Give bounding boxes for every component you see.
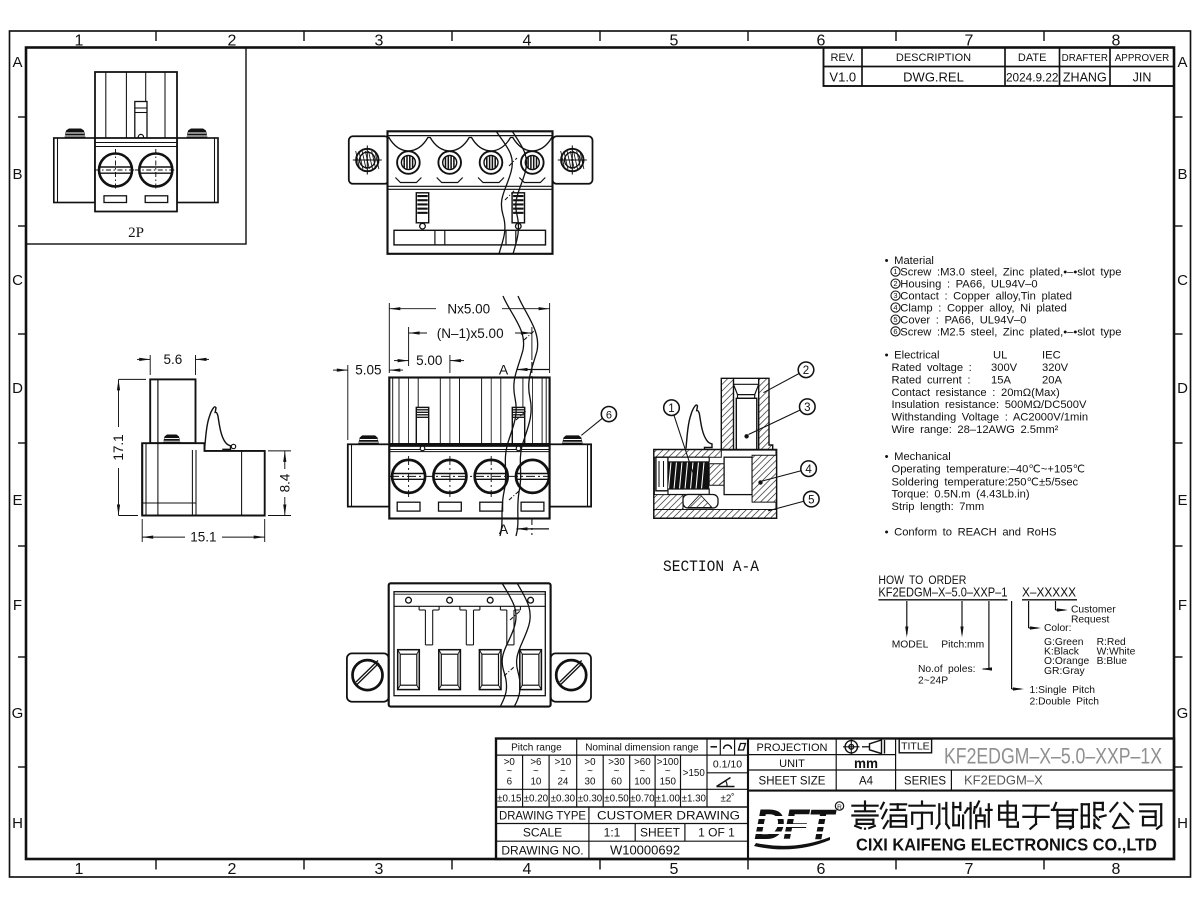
svg-text:5: 5 xyxy=(670,33,679,50)
svg-text:Screw :M3.0 steel, Zinc plate: Screw :M3.0 steel, Zinc plated,•–•slot t… xyxy=(900,267,1121,279)
svg-text:• Mechanical: • Mechanical xyxy=(885,451,951,463)
svg-text:5: 5 xyxy=(893,315,897,324)
svg-text:15.1: 15.1 xyxy=(190,530,216,545)
svg-text:IEC: IEC xyxy=(1042,350,1061,362)
svg-text:17.1: 17.1 xyxy=(111,434,126,460)
svg-text:Withstanding Voltage : AC20: Withstanding Voltage : AC2000V/1min xyxy=(892,412,1089,424)
svg-text:1: 1 xyxy=(75,861,84,878)
svg-text:2:Double Pitch: 2:Double Pitch xyxy=(1030,696,1100,707)
svg-text:Pitch range: Pitch range xyxy=(511,743,562,754)
svg-text:Screw :M2.5 steel, Zinc plate: Screw :M2.5 steel, Zinc plated,•–•slot t… xyxy=(900,326,1121,338)
svg-text:Operating temperature:–40℃~+1: Operating temperature:–40℃~+105℃ xyxy=(892,463,1086,475)
svg-text:Clamp : Copper alloy, Ni: Clamp : Copper alloy, Ni plated xyxy=(900,303,1067,315)
svg-text:6: 6 xyxy=(606,410,612,422)
svg-text:±0.30: ±0.30 xyxy=(551,794,576,805)
svg-text:2024.9.22: 2024.9.22 xyxy=(1006,71,1058,85)
svg-text:Rated current :: Rated current : xyxy=(892,375,971,387)
svg-text:±2˚: ±2˚ xyxy=(720,794,734,805)
svg-text:A: A xyxy=(1177,54,1187,71)
svg-text:±0.15: ±0.15 xyxy=(497,794,522,805)
svg-text:V1.0: V1.0 xyxy=(829,70,856,85)
svg-text:E: E xyxy=(12,492,22,509)
svg-text:6: 6 xyxy=(507,777,513,788)
svg-text:H: H xyxy=(12,815,23,832)
svg-text:A: A xyxy=(499,362,509,378)
svg-text:4: 4 xyxy=(523,33,532,50)
svg-text:C: C xyxy=(12,272,23,289)
svg-text:~: ~ xyxy=(560,766,566,777)
svg-text:3: 3 xyxy=(893,291,897,300)
svg-text:Nominal dimension range: Nominal dimension range xyxy=(585,743,699,754)
svg-text:G: G xyxy=(1177,705,1189,722)
svg-text:2: 2 xyxy=(893,279,897,288)
svg-text:8.4: 8.4 xyxy=(277,473,292,492)
svg-text:B: B xyxy=(1177,166,1187,183)
svg-text:1:Single Pitch: 1:Single Pitch xyxy=(1030,685,1096,696)
svg-text:±0.30: ±0.30 xyxy=(578,794,603,805)
svg-text:±1.30: ±1.30 xyxy=(682,794,707,805)
svg-text:20A: 20A xyxy=(1042,375,1062,387)
svg-text:DRAWING TYPE: DRAWING TYPE xyxy=(499,809,586,823)
svg-text:Request: Request xyxy=(1071,614,1109,625)
svg-text:Strip length: 7mm: Strip length: 7mm xyxy=(892,501,985,513)
svg-text:150: 150 xyxy=(660,777,677,788)
svg-text:15A: 15A xyxy=(991,375,1011,387)
svg-text:• Conform to REACH and RoH: • Conform to REACH and RoHS xyxy=(885,527,1057,539)
svg-text:KF2EDGM–X: KF2EDGM–X xyxy=(964,772,1043,787)
svg-text:No.of poles:: No.of poles: xyxy=(918,664,975,675)
svg-text:~: ~ xyxy=(640,766,646,777)
svg-text:Cover : PA66, UL94V–0: Cover : PA66, UL94V–0 xyxy=(900,315,1026,327)
svg-text:D: D xyxy=(12,380,23,397)
svg-text:DWG.REL: DWG.REL xyxy=(903,70,964,85)
svg-text:Contact resistance : 20mΩ(M: Contact resistance : 20mΩ(Max) xyxy=(892,387,1060,399)
svg-text:SCALE: SCALE xyxy=(523,826,562,840)
svg-text:5.6: 5.6 xyxy=(164,352,183,367)
svg-text:DATE: DATE xyxy=(1018,52,1047,64)
svg-text:MODEL: MODEL xyxy=(892,640,929,651)
svg-text:SECTION A-A: SECTION A-A xyxy=(663,558,760,576)
svg-text:1:1: 1:1 xyxy=(604,826,621,840)
svg-text:DRAFTER: DRAFTER xyxy=(1062,53,1108,64)
svg-text:5.05: 5.05 xyxy=(355,363,381,378)
svg-text:Wire range: 28–12AWG 2.5mm²: Wire range: 28–12AWG 2.5mm² xyxy=(892,424,1059,436)
svg-text:DESCRIPTION: DESCRIPTION xyxy=(896,52,971,64)
svg-text:4: 4 xyxy=(893,303,897,312)
svg-text:0.1/10: 0.1/10 xyxy=(713,759,742,771)
svg-text:3: 3 xyxy=(804,402,810,414)
svg-text:KF2EDGM–X–5.0–XXP–1X: KF2EDGM–X–5.0–XXP–1X xyxy=(944,744,1162,769)
svg-text:G: G xyxy=(12,705,24,722)
svg-text:Housing : PA66, UL94V–0: Housing : PA66, UL94V–0 xyxy=(900,279,1037,291)
svg-text:±1.00: ±1.00 xyxy=(656,794,681,805)
svg-text:~: ~ xyxy=(665,766,671,777)
svg-text:Color:: Color: xyxy=(1044,623,1071,634)
svg-text:DRAWING NO.: DRAWING NO. xyxy=(501,844,583,858)
svg-text:F: F xyxy=(1178,597,1187,614)
svg-text:REV.: REV. xyxy=(830,52,855,64)
svg-text:A4: A4 xyxy=(859,775,874,787)
svg-text:24: 24 xyxy=(557,777,568,788)
svg-text:ZHANG: ZHANG xyxy=(1063,71,1107,85)
svg-text:KF2EDGM–X–5.0–XXP–1: KF2EDGM–X–5.0–XXP–1 xyxy=(878,585,1007,600)
svg-text:UNIT: UNIT xyxy=(779,758,805,770)
svg-text:Rated voltage :: Rated voltage : xyxy=(892,362,972,374)
svg-text:3: 3 xyxy=(375,861,384,878)
svg-text:~: ~ xyxy=(506,766,512,777)
svg-text:1: 1 xyxy=(668,403,674,415)
svg-text:4: 4 xyxy=(805,464,812,476)
svg-text:APPROVER: APPROVER xyxy=(1115,53,1169,64)
svg-text:1: 1 xyxy=(893,267,897,276)
svg-text:PROJECTION: PROJECTION xyxy=(757,742,828,754)
svg-text:Insulation resistance: 500MΩ: Insulation resistance: 500MΩ/DC500V xyxy=(892,399,1087,411)
svg-text:300V: 300V xyxy=(991,362,1018,374)
svg-text:Pitch:mm: Pitch:mm xyxy=(941,640,984,651)
svg-text:B: B xyxy=(12,166,22,183)
svg-text:6: 6 xyxy=(817,861,826,878)
svg-text:±0.50: ±0.50 xyxy=(604,794,629,805)
svg-text:5.00: 5.00 xyxy=(416,353,442,368)
svg-text:>150: >150 xyxy=(683,768,706,779)
svg-text:SERIES: SERIES xyxy=(904,775,947,787)
svg-text:Nx5.00: Nx5.00 xyxy=(447,302,490,317)
svg-text:2: 2 xyxy=(803,365,809,377)
svg-text:(N–1)x5.00: (N–1)x5.00 xyxy=(437,326,504,341)
svg-text:• Electrical: • Electrical xyxy=(885,350,940,362)
svg-text:Torque: 0.5N.m (4.43Lb.in): Torque: 0.5N.m (4.43Lb.in) xyxy=(892,489,1030,501)
svg-text:±0.20: ±0.20 xyxy=(524,794,549,805)
svg-text:~: ~ xyxy=(587,766,593,777)
svg-text:Contact : Copper alloy,Tin: Contact : Copper alloy,Tin plated xyxy=(900,291,1072,303)
svg-text:30: 30 xyxy=(585,777,596,788)
svg-text:~: ~ xyxy=(533,766,539,777)
svg-text:±0.70: ±0.70 xyxy=(630,794,655,805)
svg-text:5: 5 xyxy=(808,494,814,506)
svg-text:~: ~ xyxy=(614,766,620,777)
svg-text:JIN: JIN xyxy=(1133,71,1152,85)
svg-text:• Material: • Material xyxy=(885,255,934,267)
svg-text:Soldering temperature:250℃±5/: Soldering temperature:250℃±5/5sec xyxy=(892,477,1079,489)
svg-text:X–XXXXX: X–XXXXX xyxy=(1022,585,1076,600)
svg-text:4: 4 xyxy=(523,861,532,878)
svg-text:B:Blue: B:Blue xyxy=(1097,656,1128,667)
svg-text:60: 60 xyxy=(611,777,622,788)
svg-text:UL: UL xyxy=(993,350,1007,362)
svg-text:C: C xyxy=(1177,272,1188,289)
svg-text:A: A xyxy=(12,54,22,71)
svg-text:E: E xyxy=(1177,492,1187,509)
svg-text:SHEET: SHEET xyxy=(640,826,681,840)
svg-text:W10000692: W10000692 xyxy=(610,843,680,858)
svg-text:100: 100 xyxy=(634,777,651,788)
svg-text:3: 3 xyxy=(375,33,384,50)
svg-text:CIXI KAIFENG ELECTRONICS CO.,L: CIXI KAIFENG ELECTRONICS CO.,LTD xyxy=(856,835,1157,855)
svg-text:2P: 2P xyxy=(128,225,144,241)
svg-text:5: 5 xyxy=(670,861,679,878)
svg-text:mm: mm xyxy=(854,756,878,771)
svg-text:8: 8 xyxy=(1112,861,1121,878)
svg-text:H: H xyxy=(1177,815,1188,832)
svg-text:2: 2 xyxy=(228,861,237,878)
svg-text:6: 6 xyxy=(893,327,897,336)
svg-text:GR:Gray: GR:Gray xyxy=(1044,666,1085,677)
svg-text:R: R xyxy=(837,804,842,811)
svg-text:320V: 320V xyxy=(1042,362,1069,374)
svg-text:SHEET SIZE: SHEET SIZE xyxy=(759,775,826,787)
svg-text:CUSTOMER DRAWING: CUSTOMER DRAWING xyxy=(597,809,740,823)
svg-text:7: 7 xyxy=(965,861,974,878)
svg-text:D: D xyxy=(1177,380,1188,397)
svg-text:10: 10 xyxy=(530,777,541,788)
svg-text:TITLE: TITLE xyxy=(901,741,930,753)
svg-text:1 OF 1: 1 OF 1 xyxy=(698,826,735,840)
svg-text:2~24P: 2~24P xyxy=(918,675,948,686)
svg-text:F: F xyxy=(13,597,22,614)
